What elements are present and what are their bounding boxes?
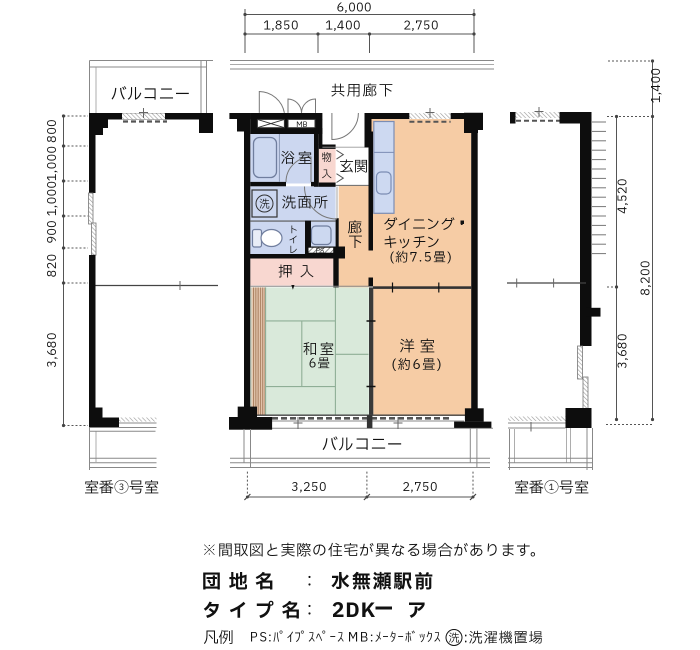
- svg-text:タイプ名: タイプ名: [202, 598, 308, 626]
- svg-text:ア: ア: [407, 596, 427, 626]
- svg-text:水無瀬駅前: 水無瀬駅前: [331, 569, 435, 597]
- svg-text:バルコニー: バルコニー: [322, 434, 403, 458]
- svg-text:1,000: 1,000: [44, 146, 62, 181]
- svg-text:室番①号室: 室番①号室: [514, 477, 589, 500]
- svg-text:共用廊下: 共用廊下: [331, 82, 395, 103]
- svg-text:8,200: 8,200: [638, 260, 656, 295]
- svg-text:PS:ﾊﾟｲﾌﾟｽﾍﾟｰｽ: PS:ﾊﾟｲﾌﾟｽﾍﾟｰｽ: [250, 629, 345, 648]
- svg-text:2,750: 2,750: [402, 479, 437, 497]
- svg-text:800: 800: [44, 119, 62, 143]
- svg-text:6畳: 6畳: [309, 355, 331, 374]
- svg-text:820: 820: [44, 254, 62, 278]
- svg-text:玄関: 玄関: [340, 158, 369, 179]
- svg-text:洗面所: 洗面所: [282, 194, 330, 215]
- svg-text:3,680: 3,680: [44, 332, 62, 367]
- svg-text:MB:ﾒｰﾀｰﾎﾞｯｸｽ: MB:ﾒｰﾀｰﾎﾞｯｸｽ: [348, 629, 442, 648]
- svg-text:浴室: 浴室: [281, 149, 315, 170]
- svg-text:900: 900: [44, 220, 62, 244]
- svg-text:1,400: 1,400: [325, 18, 360, 36]
- svg-text:(約7.5畳): (約7.5畳): [390, 248, 453, 268]
- svg-text:洗: 洗: [449, 630, 460, 647]
- svg-text:バルコニー: バルコニー: [111, 84, 191, 108]
- svg-text:4,520: 4,520: [615, 178, 633, 213]
- svg-text:物: 物: [322, 150, 333, 166]
- svg-text:：: ：: [301, 599, 318, 624]
- svg-text:1,000: 1,000: [44, 181, 62, 216]
- svg-text:2DK: 2DK: [332, 596, 376, 626]
- svg-text:凡例: 凡例: [203, 627, 234, 650]
- svg-text:2,750: 2,750: [403, 18, 438, 36]
- svg-text:洗: 洗: [259, 197, 270, 213]
- svg-text:下: 下: [348, 233, 363, 254]
- svg-text:：: ：: [301, 570, 318, 595]
- svg-text:押入: 押入: [278, 263, 321, 284]
- svg-text:3,680: 3,680: [615, 333, 633, 368]
- svg-text:3,250: 3,250: [291, 479, 326, 497]
- svg-text:団地名: 団地名: [202, 569, 282, 597]
- svg-text:(約6畳): (約6畳): [392, 355, 443, 375]
- svg-text::洗濯機置場: :洗濯機置場: [464, 629, 544, 650]
- svg-text:1,850: 1,850: [263, 18, 298, 36]
- svg-text:MB: MB: [296, 120, 308, 131]
- svg-text:室番③号室: 室番③号室: [84, 477, 159, 500]
- svg-text:1,400: 1,400: [648, 68, 666, 103]
- svg-text:入: 入: [322, 167, 333, 183]
- svg-text:※間取図と実際の住宅が異なる場合があります。: ※間取図と実際の住宅が異なる場合があります。: [202, 540, 545, 563]
